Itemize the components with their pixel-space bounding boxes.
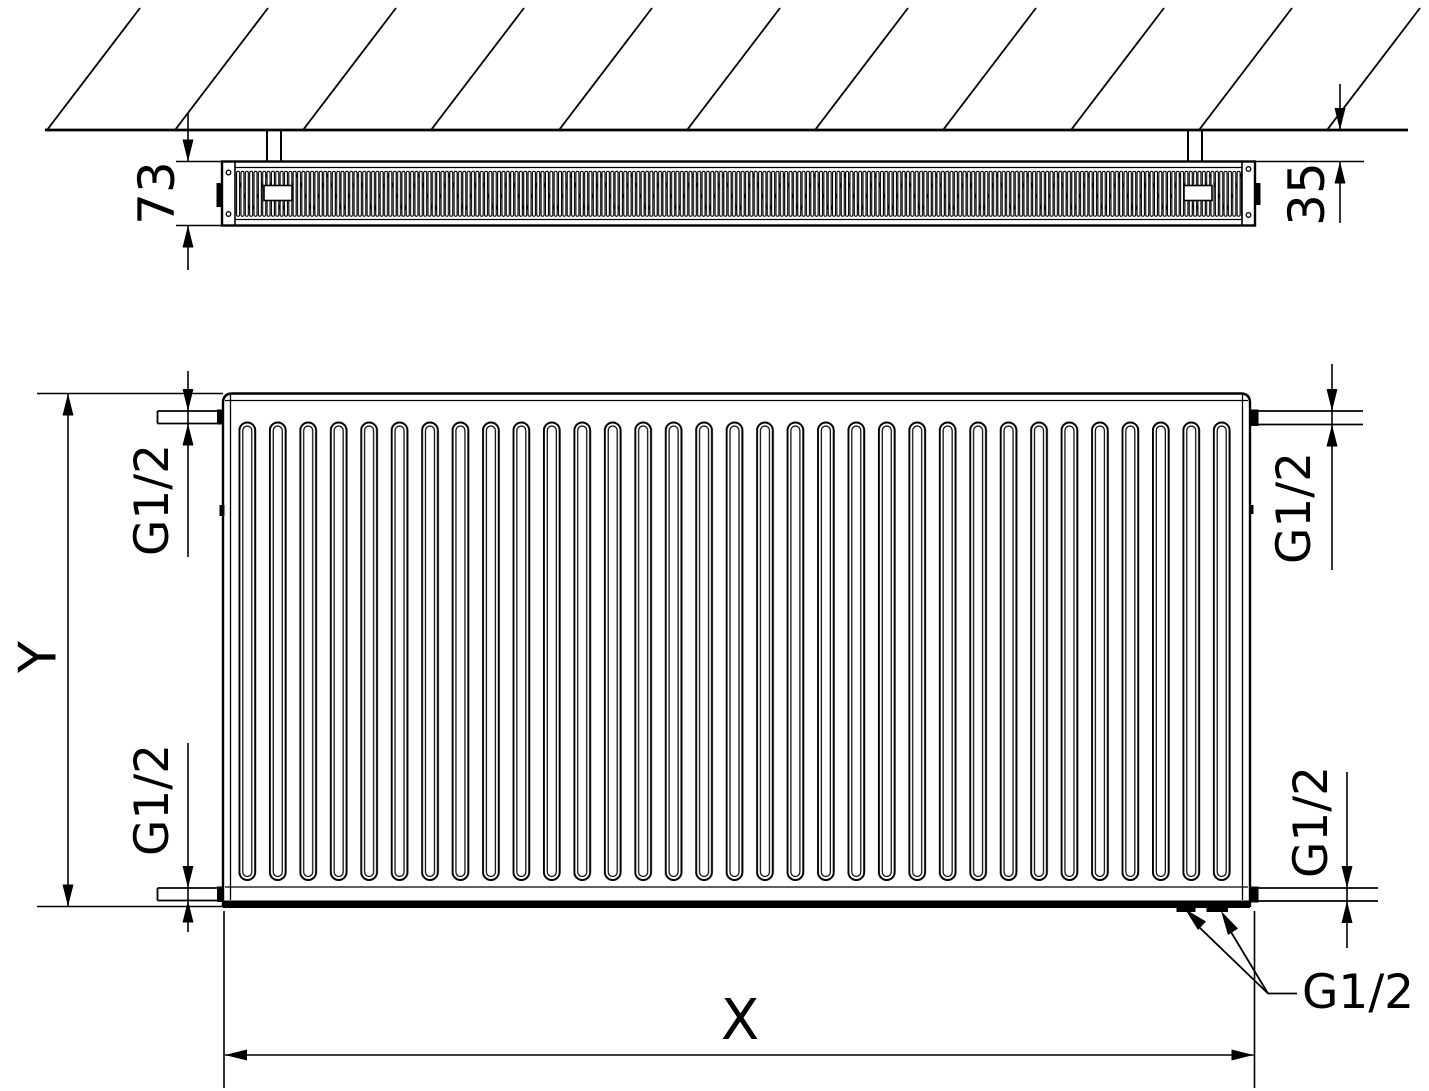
height-dimension-label: Y	[9, 641, 69, 674]
front-panel-channels	[239, 420, 1243, 883]
connection-thread-label-bottom-left: G1/2	[125, 744, 180, 856]
arrowhead	[183, 901, 194, 923]
dimension-depth: 73	[128, 113, 232, 270]
bracket-clamp-left	[264, 186, 292, 201]
connection-stub-top-right	[1251, 410, 1364, 427]
width-dimension-label: X	[721, 988, 759, 1053]
dimension-connection-top-right: G1/2	[1267, 364, 1338, 570]
dimension-connection-top-left: G1/2	[125, 371, 194, 557]
connection-stub-bottom-left	[158, 887, 224, 903]
connection-stub-bottom-right	[1251, 887, 1379, 903]
arrowhead	[1342, 901, 1353, 923]
dimension-connection-bottom-right: G1/2	[1284, 766, 1353, 948]
side-tapping-mark-right	[1249, 505, 1254, 514]
connection-thread-label-bottom-callout: G1/2	[1302, 965, 1414, 1020]
arrowhead	[1327, 389, 1338, 411]
dimension-width: X	[224, 911, 1255, 1088]
arrowhead	[183, 140, 194, 162]
arrowhead	[63, 885, 74, 907]
wall-clearance-dimension-label: 35	[1278, 162, 1336, 226]
connection-thread-label-top-right: G1/2	[1267, 452, 1322, 564]
connection-thread-label-top-left: G1/2	[125, 444, 180, 556]
arrowhead	[183, 389, 194, 411]
arrowhead	[1335, 162, 1346, 184]
bracket-clamp-right	[1184, 186, 1212, 201]
dimension-height: Y	[9, 394, 74, 907]
wall-hatching	[45, 8, 1420, 130]
arrowhead	[183, 424, 194, 446]
bottom-connection-tab	[1207, 908, 1229, 913]
convector-fins	[236, 169, 1242, 219]
dimension-wall-gap: 35	[1255, 84, 1364, 226]
front-view: Y G1/2 G1/2 G1/2 G1/2	[9, 364, 1414, 1088]
wall-bracket-left	[267, 131, 281, 162]
connection-stub-top-left	[158, 410, 224, 425]
radiator-top-view-body	[217, 131, 1261, 226]
arrowhead	[225, 1050, 247, 1061]
side-tapping-mark-left	[220, 505, 225, 516]
dimension-connection-bottom-left: G1/2	[125, 743, 194, 932]
arrowhead	[183, 866, 194, 888]
arrowhead	[1342, 866, 1353, 888]
radiator-front-body	[220, 394, 1254, 913]
top-view: 73 35	[45, 8, 1420, 270]
wall-bracket-right	[1188, 131, 1202, 162]
radiator-technical-drawing: 73 35	[0, 0, 1429, 1091]
arrowhead	[183, 226, 194, 248]
arrowhead	[63, 394, 74, 416]
arrowhead	[1221, 911, 1238, 935]
arrowhead	[1185, 909, 1206, 930]
connection-thread-label-bottom-right: G1/2	[1284, 766, 1339, 878]
bottom-connection-callout: G1/2	[1185, 909, 1414, 1020]
arrowhead	[1232, 1050, 1254, 1061]
depth-dimension-label: 73	[128, 161, 186, 225]
arrowhead	[1327, 425, 1338, 447]
